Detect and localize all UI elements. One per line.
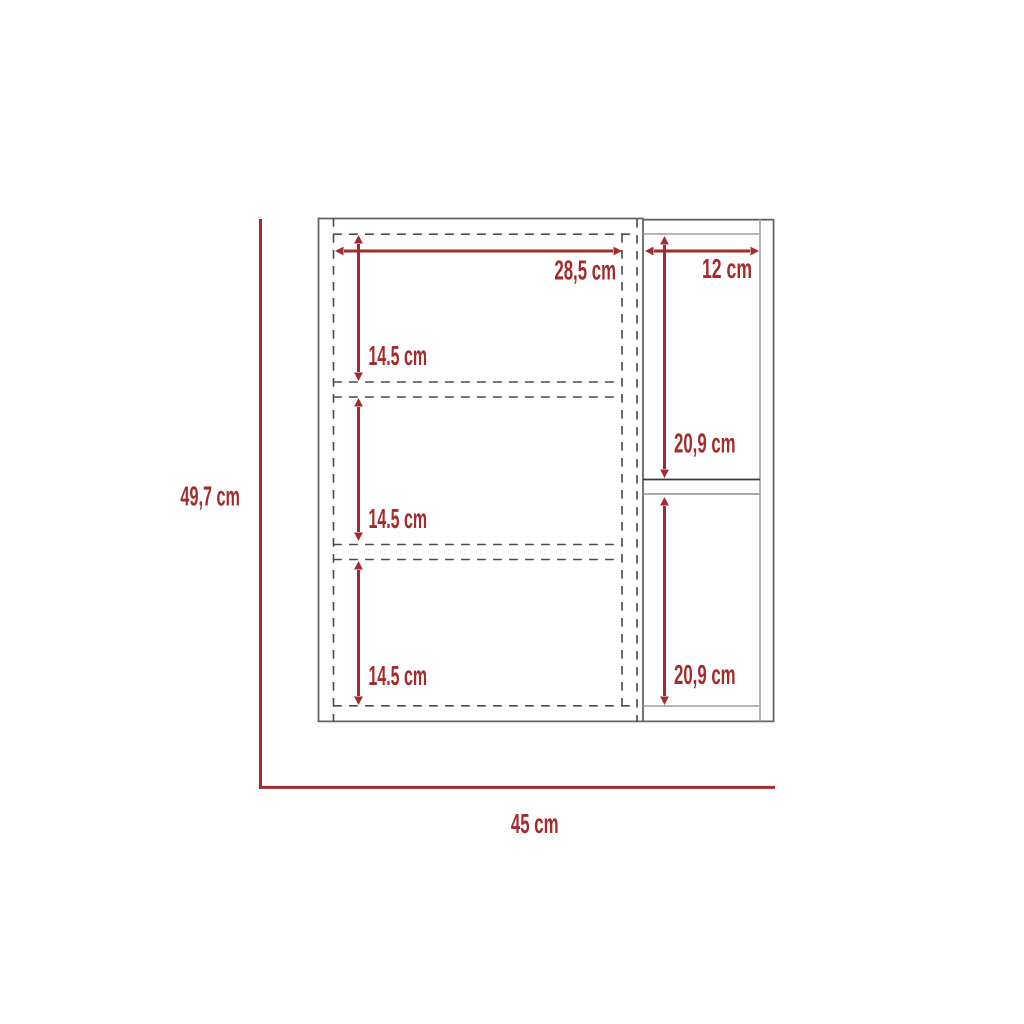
svg-text:49,7 cm: 49,7 cm (180, 480, 240, 512)
svg-text:14.5 cm: 14.5 cm (369, 339, 428, 371)
svg-text:14.5 cm: 14.5 cm (369, 659, 428, 691)
svg-text:20,9 cm: 20,9 cm (674, 427, 736, 459)
svg-text:20,9 cm: 20,9 cm (674, 659, 736, 691)
svg-text:14.5 cm: 14.5 cm (369, 502, 428, 534)
svg-text:12 cm: 12 cm (702, 253, 752, 284)
svg-text:45 cm: 45 cm (511, 808, 559, 840)
svg-text:28,5 cm: 28,5 cm (554, 254, 616, 286)
